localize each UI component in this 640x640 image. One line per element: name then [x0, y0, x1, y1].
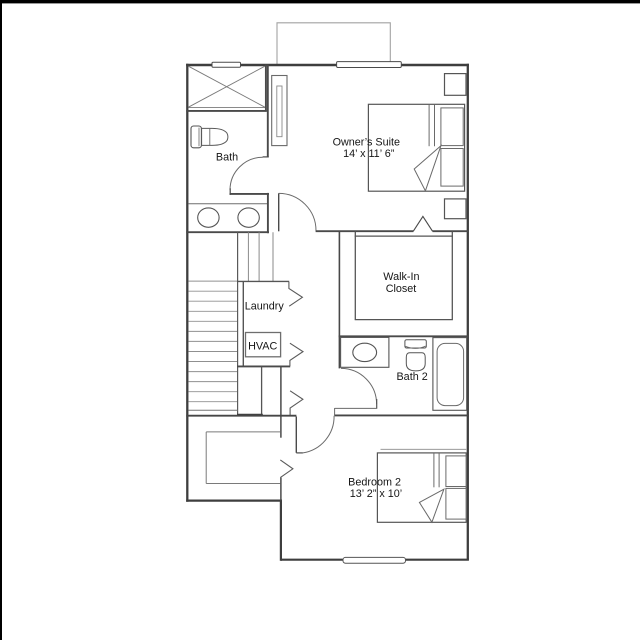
- svg-text:Bedroom 2: Bedroom 2: [348, 476, 401, 488]
- svg-text:HVAC: HVAC: [248, 341, 277, 353]
- svg-text:Walk-In: Walk-In: [383, 271, 419, 283]
- svg-text:Owner’s Suite: Owner’s Suite: [333, 136, 400, 148]
- svg-text:Bath 2: Bath 2: [396, 371, 427, 383]
- svg-text:13’ 2” x 10’: 13’ 2” x 10’: [350, 488, 402, 500]
- svg-text:Closet: Closet: [386, 283, 417, 295]
- svg-text:14’ x 11’ 6”: 14’ x 11’ 6”: [343, 148, 395, 160]
- svg-text:Laundry: Laundry: [245, 300, 285, 312]
- svg-text:Bath: Bath: [216, 152, 238, 164]
